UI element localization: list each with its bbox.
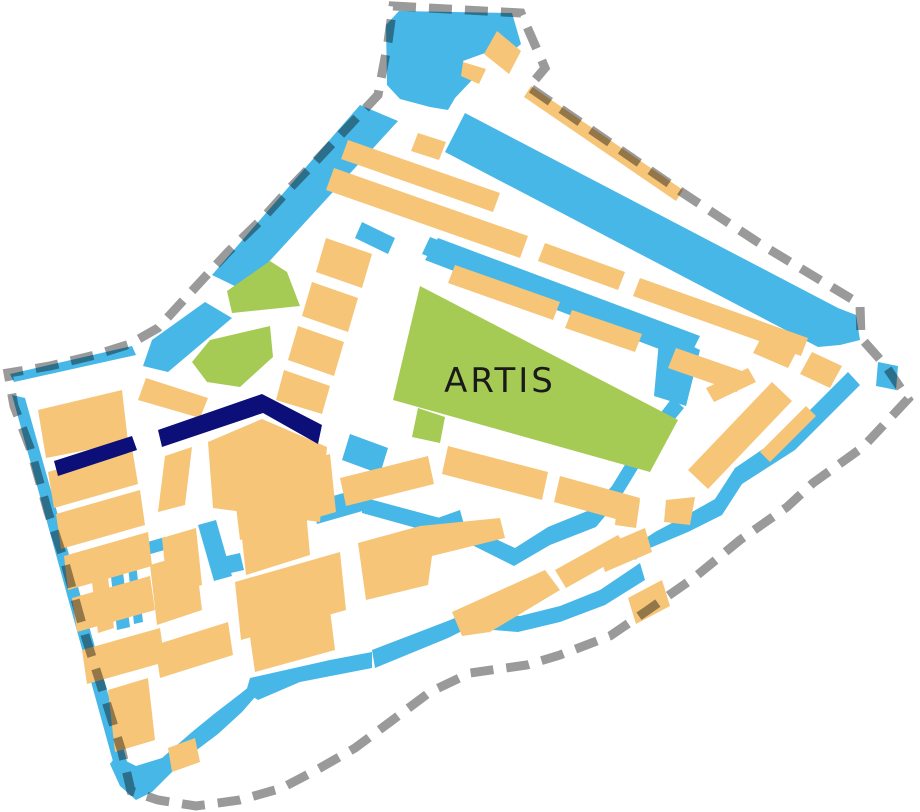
artis-label: ARTIS	[444, 361, 556, 401]
center-m6	[598, 528, 652, 572]
canal-bit-1	[355, 222, 395, 254]
ne-strip-1b	[411, 133, 446, 160]
park-small-square	[412, 408, 445, 443]
west-col-1	[316, 238, 372, 288]
map-stage: ARTIS	[0, 0, 920, 812]
left-wedge	[138, 378, 208, 418]
map-canvas: ARTIS	[0, 0, 920, 812]
sw-a2	[158, 447, 192, 512]
west-col-3	[288, 326, 344, 376]
sw-d3	[150, 552, 202, 625]
sw-f3	[168, 738, 200, 772]
se-block-4	[664, 497, 695, 525]
sw-e2	[155, 622, 233, 678]
center-m1	[358, 518, 505, 600]
center-t2	[442, 446, 548, 500]
west-col-2	[302, 282, 358, 332]
east-block-3	[800, 352, 842, 388]
